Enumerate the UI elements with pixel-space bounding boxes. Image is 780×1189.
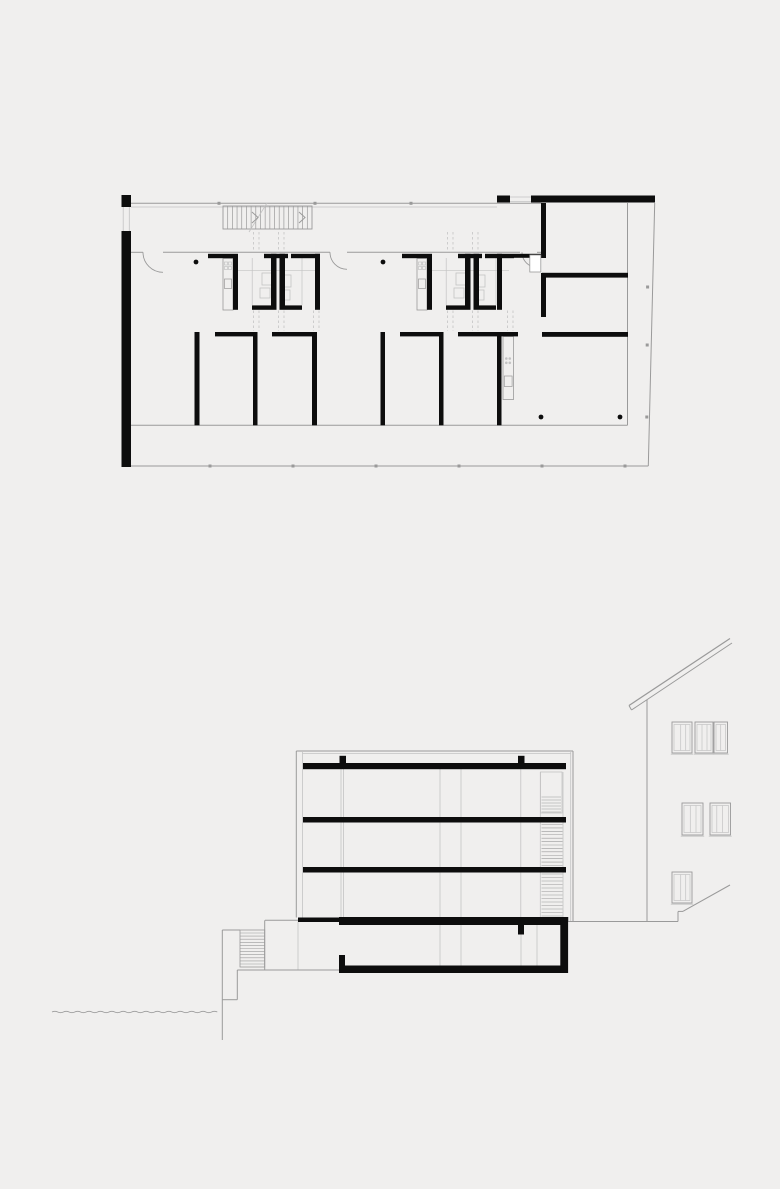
floor-plan bbox=[122, 195, 656, 468]
section-drawing bbox=[52, 639, 732, 1041]
drawing-sheet bbox=[0, 0, 780, 1189]
architectural-drawing-canvas bbox=[0, 0, 780, 1189]
